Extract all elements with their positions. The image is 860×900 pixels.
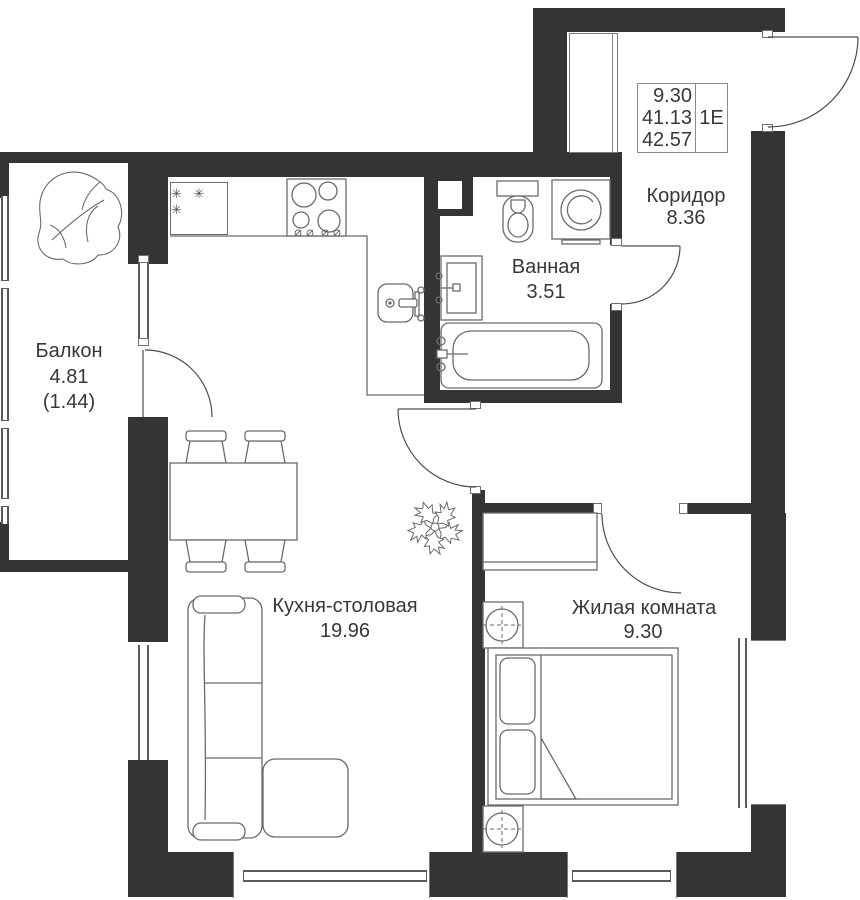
kitchen-left-window <box>138 645 149 760</box>
kitchen-sink <box>378 284 424 322</box>
corridor-closet <box>569 33 618 153</box>
wall-bottom-b <box>430 852 567 897</box>
balcony-glazing-window <box>1 196 9 524</box>
wall-balcony-top <box>0 152 130 163</box>
nightstand-lamp <box>483 806 523 852</box>
unit-areas: 9.30 41.13 42.57 <box>638 84 695 152</box>
entrance-door-jamb <box>762 124 773 132</box>
bathroom-door-jamb <box>611 303 622 311</box>
balcony-door <box>143 350 212 417</box>
kitchen-dining-area: 19.96 <box>320 621 370 641</box>
kitchen-corridor-door <box>398 409 476 487</box>
unit-living-area: 41.13 <box>638 107 692 129</box>
wall-balcony-kitchen-top <box>128 152 168 264</box>
kitchen-counter <box>170 236 424 395</box>
wall-balcony-left-top <box>0 152 9 198</box>
wall-living-top-left <box>483 503 595 514</box>
vent-shaft-niche <box>438 181 462 209</box>
corridor-area: 8.36 <box>667 208 706 228</box>
wall-balcony-kitchen-bottom <box>128 417 168 642</box>
dining-chair <box>245 540 285 572</box>
dining-chair <box>186 431 226 463</box>
balcony-area: 4.81 <box>50 367 89 387</box>
corridor-label: Коридор <box>647 186 726 206</box>
balcony-leaf-decoration <box>38 172 122 264</box>
wall-bath-right-top <box>610 177 622 245</box>
wall-bottom-a <box>128 852 233 897</box>
balcony-label: Балкон <box>35 341 102 361</box>
balcony-glazing-mullion <box>1 420 9 429</box>
balcony-glazing-mullion <box>1 498 9 507</box>
corridor-closet-front-line <box>612 34 613 152</box>
unit-type-badge: 1Е <box>695 84 727 152</box>
bathroom-area: 3.51 <box>527 282 566 302</box>
kitchen-dining-label: Кухня-столовая <box>272 596 417 616</box>
stove <box>287 179 346 236</box>
window-jamb <box>138 255 149 263</box>
wall-balcony-bottom <box>0 560 130 572</box>
fridge-freezer-symbol: ✳ ✳ ✳ <box>171 186 227 218</box>
nightstand-lamp <box>483 602 523 648</box>
wall-bath-left-strip <box>424 216 440 403</box>
unit-room-area: 9.30 <box>638 85 692 107</box>
washing-machine <box>552 180 610 244</box>
dining-chair <box>245 431 285 463</box>
living-bottom-window <box>572 870 671 882</box>
living-door-jamb <box>679 503 688 514</box>
unit-info-box: 9.30 41.13 42.57 1Е <box>637 83 728 153</box>
wardrobe <box>483 513 597 570</box>
window-jamb <box>138 338 149 346</box>
entrance-door-jamb <box>762 30 773 38</box>
living-room-label: Жилая комната <box>572 598 716 618</box>
wall-bottom-c <box>677 852 786 897</box>
toilet <box>497 181 538 242</box>
fridge: ✳ ✳ ✳ <box>170 182 228 235</box>
balcony-kitchen-window <box>138 262 149 340</box>
wall-top <box>533 8 785 32</box>
washbasin <box>436 256 482 320</box>
wall-living-top-right <box>687 503 751 514</box>
balcony-area-secondary: (1.44) <box>43 392 95 412</box>
unit-total-area: 42.57 <box>638 129 692 151</box>
living-right-window-niche <box>751 640 786 805</box>
living-right-window <box>738 638 747 808</box>
plant-decoration <box>406 499 464 554</box>
kitchen-bottom-window <box>243 870 427 882</box>
living-room-door <box>602 514 681 593</box>
balcony-glazing-mullion <box>1 280 9 289</box>
wall-kitchen-living-divider <box>472 490 485 852</box>
kitchen-door-jamb <box>470 401 481 409</box>
dining-table <box>170 463 297 540</box>
wall-right-upper <box>751 131 785 513</box>
wall-right-lower <box>751 805 786 852</box>
bathroom-door-jamb <box>611 238 622 246</box>
wall-bath-bottom <box>424 390 622 403</box>
bed <box>488 648 678 805</box>
bathtub <box>437 323 602 388</box>
bathroom-label: Ванная <box>512 257 581 277</box>
entrance-door <box>768 37 858 127</box>
floor-plan: ✳ ✳ ✳ <box>0 0 860 900</box>
wall-right-mid <box>751 513 786 640</box>
kitchen-door-jamb <box>470 486 481 494</box>
living-door-jamb <box>593 503 602 514</box>
wall-bath-right-bottom <box>610 304 622 390</box>
dining-chair <box>186 540 226 572</box>
bathroom-door <box>622 246 680 304</box>
living-room-area: 9.30 <box>624 622 663 642</box>
